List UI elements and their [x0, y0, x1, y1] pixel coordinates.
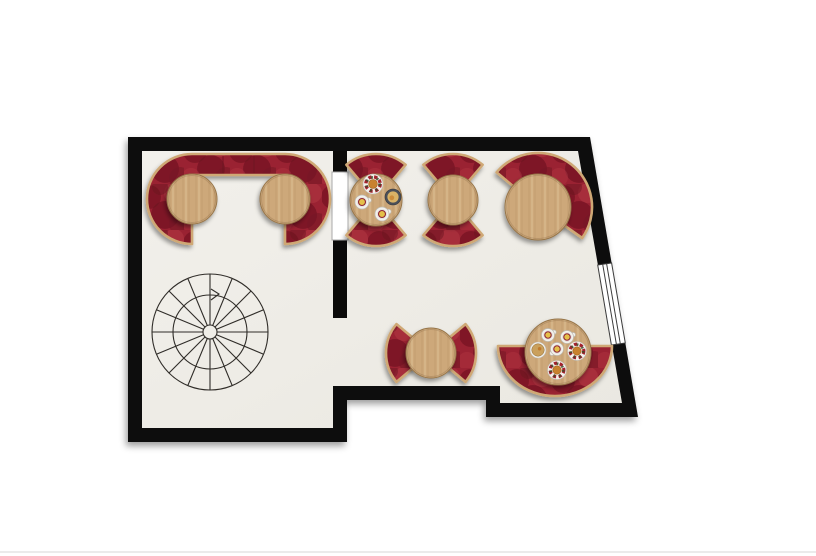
table-7: [525, 319, 591, 385]
partition-wall: [333, 151, 347, 172]
table-2: [260, 174, 310, 224]
table-1-top: [167, 174, 217, 224]
table-4: [428, 175, 478, 225]
plan-content-layer: [128, 137, 638, 442]
plate-food: [369, 180, 378, 189]
food-plate: [548, 361, 567, 380]
food-plate: [568, 342, 587, 361]
plate-food: [573, 347, 581, 355]
cup-tea: [545, 332, 552, 339]
food-bowl_tan: [530, 342, 546, 358]
cup-tea: [554, 346, 561, 353]
table-6: [406, 328, 456, 378]
table-3: [350, 174, 402, 226]
floor-plan-canvas: [0, 0, 816, 556]
food-plate: [363, 174, 383, 194]
bowl-garnish: [538, 347, 542, 351]
bowl-content: [532, 344, 544, 356]
table-6-top: [406, 328, 456, 378]
plate-food: [553, 366, 561, 374]
cup-tea: [359, 199, 366, 206]
floor-plan-page: [0, 0, 816, 556]
table-5: [505, 174, 571, 240]
table-5-top: [505, 174, 571, 240]
bowl-garnish: [389, 195, 394, 200]
cup-tea: [564, 334, 571, 341]
table-1: [167, 174, 217, 224]
food-bowl_dark: [385, 189, 401, 205]
partition-wall: [333, 240, 347, 318]
table-4-top: [428, 175, 478, 225]
page-bottom-divider: [0, 551, 816, 553]
cup-tea: [379, 211, 386, 218]
table-2-top: [260, 174, 310, 224]
doorway-opening: [332, 172, 348, 240]
